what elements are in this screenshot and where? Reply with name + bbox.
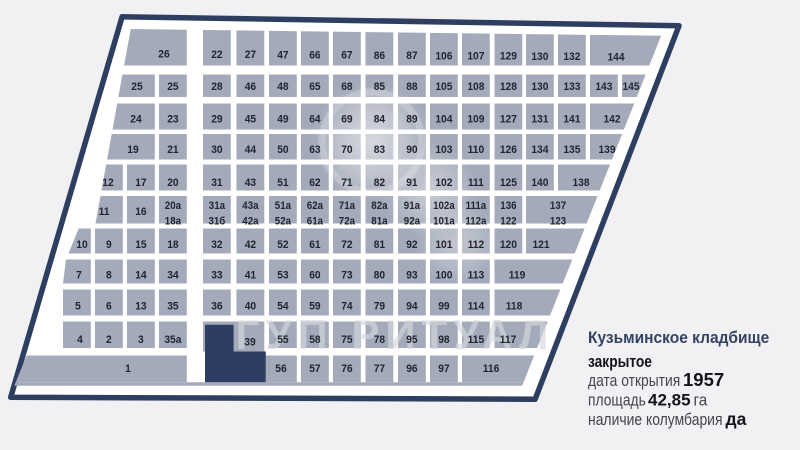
svg-text:107: 107 [467, 50, 484, 63]
svg-text:19: 19 [127, 143, 138, 156]
svg-text:5: 5 [75, 300, 81, 313]
svg-text:110: 110 [468, 143, 485, 156]
svg-text:90: 90 [406, 143, 417, 156]
svg-text:93: 93 [406, 269, 417, 282]
svg-text:30: 30 [211, 143, 222, 156]
svg-text:127: 127 [500, 113, 517, 126]
svg-text:105: 105 [435, 81, 452, 94]
svg-text:94: 94 [406, 300, 417, 313]
svg-text:86: 86 [374, 49, 385, 62]
svg-text:123: 123 [550, 216, 566, 228]
svg-text:9: 9 [106, 239, 112, 252]
svg-text:11: 11 [99, 206, 110, 219]
svg-text:Кузьминское кладбище: Кузьминское кладбище [588, 329, 769, 348]
svg-text:62a: 62a [307, 200, 323, 212]
svg-text:95: 95 [406, 333, 417, 346]
svg-text:42: 42 [245, 239, 256, 252]
svg-text:83: 83 [374, 143, 385, 156]
svg-text:103: 103 [435, 143, 452, 156]
svg-text:109: 109 [467, 113, 484, 126]
svg-text:130: 130 [531, 50, 548, 63]
svg-text:25: 25 [167, 81, 178, 94]
svg-text:75: 75 [341, 333, 352, 346]
svg-text:87: 87 [406, 50, 417, 63]
svg-text:61: 61 [309, 239, 320, 252]
svg-text:31б: 31б [208, 215, 225, 228]
svg-text:32: 32 [211, 239, 222, 252]
svg-text:27: 27 [245, 49, 256, 62]
svg-text:69: 69 [341, 113, 352, 126]
svg-text:25: 25 [131, 81, 142, 94]
svg-text:53: 53 [277, 269, 288, 282]
svg-text:54: 54 [277, 300, 288, 313]
svg-text:134: 134 [531, 143, 548, 156]
svg-text:72: 72 [341, 239, 352, 252]
svg-text:73: 73 [341, 269, 352, 282]
svg-text:площадь: площадь [588, 391, 646, 410]
svg-text:140: 140 [531, 177, 548, 190]
svg-text:71a: 71a [339, 200, 355, 212]
svg-text:68: 68 [341, 81, 352, 94]
svg-text:49: 49 [277, 113, 288, 126]
svg-text:111: 111 [468, 177, 484, 190]
svg-text:42a: 42a [242, 216, 258, 228]
svg-text:82: 82 [374, 177, 385, 190]
svg-text:65: 65 [309, 81, 320, 94]
svg-text:91: 91 [406, 177, 417, 190]
svg-text:141: 141 [563, 113, 580, 126]
svg-text:21: 21 [167, 143, 178, 156]
svg-text:3: 3 [138, 333, 144, 346]
svg-text:43a: 43a [242, 200, 258, 212]
svg-text:50: 50 [277, 143, 288, 156]
svg-text:закрытое: закрытое [588, 353, 652, 372]
svg-text:8: 8 [106, 269, 112, 282]
svg-text:81: 81 [374, 239, 385, 252]
svg-text:115: 115 [468, 333, 485, 346]
svg-text:99: 99 [438, 300, 449, 313]
svg-text:92: 92 [406, 239, 417, 252]
svg-text:64: 64 [309, 113, 320, 126]
svg-text:17: 17 [135, 177, 146, 190]
svg-text:48: 48 [277, 81, 288, 94]
svg-text:61a: 61a [307, 216, 323, 228]
svg-text:112a: 112a [465, 216, 486, 228]
svg-text:62: 62 [309, 177, 320, 190]
svg-text:да: да [726, 409, 747, 429]
svg-text:142: 142 [603, 113, 620, 126]
svg-text:108: 108 [467, 81, 484, 94]
svg-text:42,85: 42,85 [648, 391, 691, 410]
svg-text:113: 113 [468, 269, 485, 282]
svg-text:82a: 82a [371, 200, 387, 212]
svg-text:7: 7 [76, 269, 82, 282]
svg-text:97: 97 [438, 362, 449, 375]
svg-text:47: 47 [277, 49, 288, 62]
svg-text:89: 89 [406, 113, 417, 126]
svg-text:12: 12 [102, 177, 113, 190]
svg-text:91a: 91a [404, 200, 420, 212]
svg-text:63: 63 [309, 143, 320, 156]
svg-text:31a: 31a [209, 200, 225, 212]
svg-text:35a: 35a [164, 333, 182, 346]
svg-text:4: 4 [77, 333, 83, 346]
svg-text:74: 74 [341, 300, 352, 313]
svg-text:13: 13 [135, 300, 146, 313]
svg-text:106: 106 [435, 50, 452, 63]
svg-text:20: 20 [167, 177, 178, 190]
svg-text:40: 40 [245, 300, 256, 313]
svg-text:132: 132 [563, 51, 580, 64]
svg-text:1: 1 [125, 362, 131, 375]
svg-text:78: 78 [374, 333, 385, 346]
svg-text:23: 23 [167, 113, 178, 126]
svg-text:35: 35 [167, 300, 178, 313]
svg-text:2: 2 [106, 333, 112, 346]
svg-text:56: 56 [275, 362, 286, 375]
svg-text:70: 70 [341, 143, 352, 156]
svg-text:55: 55 [277, 333, 288, 346]
svg-text:116: 116 [483, 362, 500, 375]
svg-text:125: 125 [500, 177, 517, 190]
svg-text:22: 22 [211, 48, 222, 61]
svg-text:104: 104 [435, 113, 452, 126]
svg-text:дата открытия: дата открытия [588, 372, 680, 391]
svg-text:67: 67 [341, 49, 352, 62]
svg-text:101a: 101a [433, 216, 455, 228]
svg-text:10: 10 [76, 239, 87, 252]
svg-text:136: 136 [500, 200, 516, 212]
svg-text:31: 31 [211, 177, 222, 190]
svg-text:130: 130 [531, 81, 548, 94]
svg-text:71: 71 [341, 177, 352, 190]
svg-text:138: 138 [572, 177, 589, 190]
svg-text:128: 128 [500, 81, 517, 94]
svg-text:114: 114 [468, 300, 485, 313]
svg-text:20a: 20a [165, 200, 181, 212]
svg-text:121: 121 [532, 239, 549, 252]
svg-text:59: 59 [309, 300, 320, 313]
svg-text:77: 77 [374, 362, 385, 375]
svg-text:14: 14 [135, 269, 146, 282]
svg-text:133: 133 [563, 81, 580, 94]
svg-text:33: 33 [211, 269, 222, 282]
svg-text:144: 144 [607, 51, 624, 64]
svg-text:85: 85 [374, 81, 385, 94]
svg-text:51: 51 [277, 177, 288, 190]
svg-text:28: 28 [211, 81, 222, 94]
svg-text:34: 34 [167, 269, 178, 282]
svg-text:92a: 92a [404, 216, 420, 228]
svg-text:84: 84 [374, 113, 385, 126]
svg-text:131: 131 [531, 113, 548, 126]
svg-text:101: 101 [435, 239, 452, 252]
svg-text:18a: 18a [165, 216, 181, 228]
svg-text:52a: 52a [275, 216, 291, 228]
svg-text:52: 52 [277, 239, 288, 252]
svg-text:1957: 1957 [683, 369, 724, 390]
svg-text:129: 129 [500, 50, 517, 63]
svg-text:126: 126 [500, 143, 517, 156]
svg-text:51a: 51a [275, 200, 291, 212]
svg-text:117: 117 [500, 333, 517, 346]
svg-text:41: 41 [245, 269, 256, 282]
svg-text:100: 100 [435, 269, 452, 282]
svg-text:57: 57 [309, 362, 320, 375]
svg-text:15: 15 [135, 239, 146, 252]
svg-text:6: 6 [106, 300, 112, 313]
svg-text:наличие колумбария: наличие колумбария [588, 411, 723, 430]
svg-text:143: 143 [595, 81, 612, 94]
svg-text:111a: 111a [466, 200, 487, 212]
svg-text:24: 24 [130, 113, 141, 126]
svg-text:43: 43 [245, 177, 256, 190]
svg-text:72a: 72a [339, 216, 355, 228]
svg-text:96: 96 [406, 362, 417, 375]
svg-text:122: 122 [500, 216, 516, 228]
svg-text:16: 16 [135, 206, 146, 219]
svg-text:79: 79 [374, 300, 385, 313]
svg-text:58: 58 [309, 333, 320, 346]
svg-text:18: 18 [167, 239, 178, 252]
svg-text:44: 44 [245, 143, 256, 156]
svg-text:135: 135 [563, 143, 580, 156]
svg-text:36: 36 [211, 300, 222, 313]
svg-text:66: 66 [309, 49, 320, 62]
svg-text:45: 45 [245, 113, 256, 126]
svg-text:120: 120 [500, 239, 517, 252]
svg-text:98: 98 [438, 333, 449, 346]
svg-text:137: 137 [550, 200, 566, 212]
svg-text:88: 88 [406, 81, 417, 94]
svg-text:139: 139 [598, 143, 615, 156]
svg-text:102: 102 [435, 177, 452, 190]
svg-text:145: 145 [622, 81, 639, 94]
svg-text:46: 46 [245, 81, 256, 94]
svg-text:60: 60 [309, 269, 320, 282]
svg-text:102a: 102a [433, 200, 455, 212]
svg-text:80: 80 [374, 269, 385, 282]
svg-text:81a: 81a [371, 216, 387, 228]
svg-text:29: 29 [211, 113, 222, 126]
svg-text:га: га [694, 391, 708, 410]
svg-text:112: 112 [468, 239, 485, 252]
svg-text:76: 76 [341, 362, 352, 375]
svg-text:119: 119 [509, 269, 526, 282]
svg-text:118: 118 [506, 300, 523, 313]
svg-text:39: 39 [244, 336, 255, 349]
svg-text:26: 26 [158, 48, 169, 61]
